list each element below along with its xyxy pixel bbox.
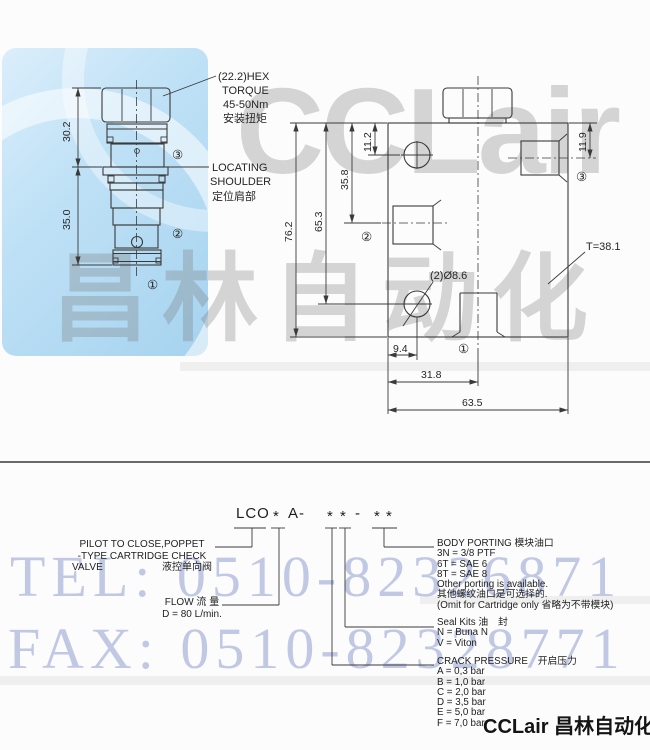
thickness-note: T=38.1 (586, 241, 621, 253)
seal-kits-label: Seal Kits 油 封 N = Buna N V = Viton (437, 618, 650, 649)
dim-35-8: 35.8 (339, 169, 351, 190)
pilot-line2: -TYPE CARTRIDGE CHECK (68, 551, 216, 563)
port-2-label: ② (172, 227, 183, 241)
code-part-a: A- (288, 505, 305, 522)
dim-11-9: 11.9 (577, 132, 589, 152)
flow-label: FLOW 流 量 D = 80 L/min. (140, 597, 244, 620)
code-part-star1: * (273, 508, 280, 525)
code-part-dash: - (355, 505, 361, 522)
dim-63-5: 63.5 (462, 397, 483, 409)
dim-65-3: 65.3 (313, 211, 325, 232)
valve-body-drawing: 76.2 65.3 35.8 11.2 11.9 9.4 31.8 63.5 T… (283, 76, 621, 414)
port-1-label: ① (147, 278, 158, 292)
holes-note: (2)Ø8.6 (430, 270, 467, 282)
datasheet-page: CCLair 昌林自动化 TEL: 0510-82326871 FAX: 051… (0, 0, 650, 750)
port-2-label: ② (361, 230, 372, 244)
dim-9-4: 9.4 (393, 343, 408, 355)
dim-31-8: 31.8 (421, 369, 442, 381)
dim-76-2: 76.2 (283, 221, 295, 242)
port-3-label: ③ (172, 148, 183, 162)
hex-note-line3: 45-50Nm (223, 99, 268, 111)
flow-line2: D = 80 L/min. (140, 609, 244, 621)
code-part-star4: * (374, 508, 381, 525)
code-part-star3: * (340, 508, 347, 525)
code-part-star2: * (327, 508, 334, 525)
port-3-label: ③ (576, 170, 587, 184)
dim-30-2: 30.2 (61, 121, 73, 142)
locating-note-line1: LOCATING (212, 162, 267, 174)
pilot-line3-en: VALVE (72, 562, 103, 574)
body-porting-item: (Omit for Cartridge only 省略为不带模块) (437, 601, 650, 611)
hex-note-line1: (22.2)HEX (218, 71, 270, 83)
locating-note-line2: SHOULDER (210, 176, 271, 188)
body-porting-label: BODY PORTING 模块油口 3N = 3/8 PTF 6T = SAE … (437, 539, 650, 611)
locating-note-line3: 定位肩部 (212, 189, 256, 203)
pilot-line1: PILOT TO CLOSE,POPPET (68, 539, 216, 551)
seal-kits-item: V = Viton (437, 639, 650, 649)
hex-note-line2: TORQUE (222, 85, 269, 97)
footer-brand: CCLair 昌林自动化 (483, 710, 650, 739)
code-part-lco: LCO (236, 505, 270, 522)
port-1-label: ① (458, 342, 469, 356)
dim-11-2: 11.2 (362, 132, 374, 152)
dim-35-0: 35.0 (61, 209, 73, 230)
flow-line1: FLOW 流 量 (140, 597, 244, 609)
pilot-line3-cn: 液控单向阀 (162, 562, 212, 574)
order-code-diagram: LCO * A- * * - * * (215, 505, 434, 665)
pilot-valve-label: PILOT TO CLOSE,POPPET -TYPE CARTRIDGE CH… (68, 539, 216, 574)
cartridge-valve-drawing: 30.2 35.0 (22.2)HEX TORQUE 45-50Nm 安装扭矩 … (61, 71, 271, 292)
code-part-star5: * (386, 508, 393, 525)
hex-note-line4: 安装扭矩 (223, 111, 267, 125)
